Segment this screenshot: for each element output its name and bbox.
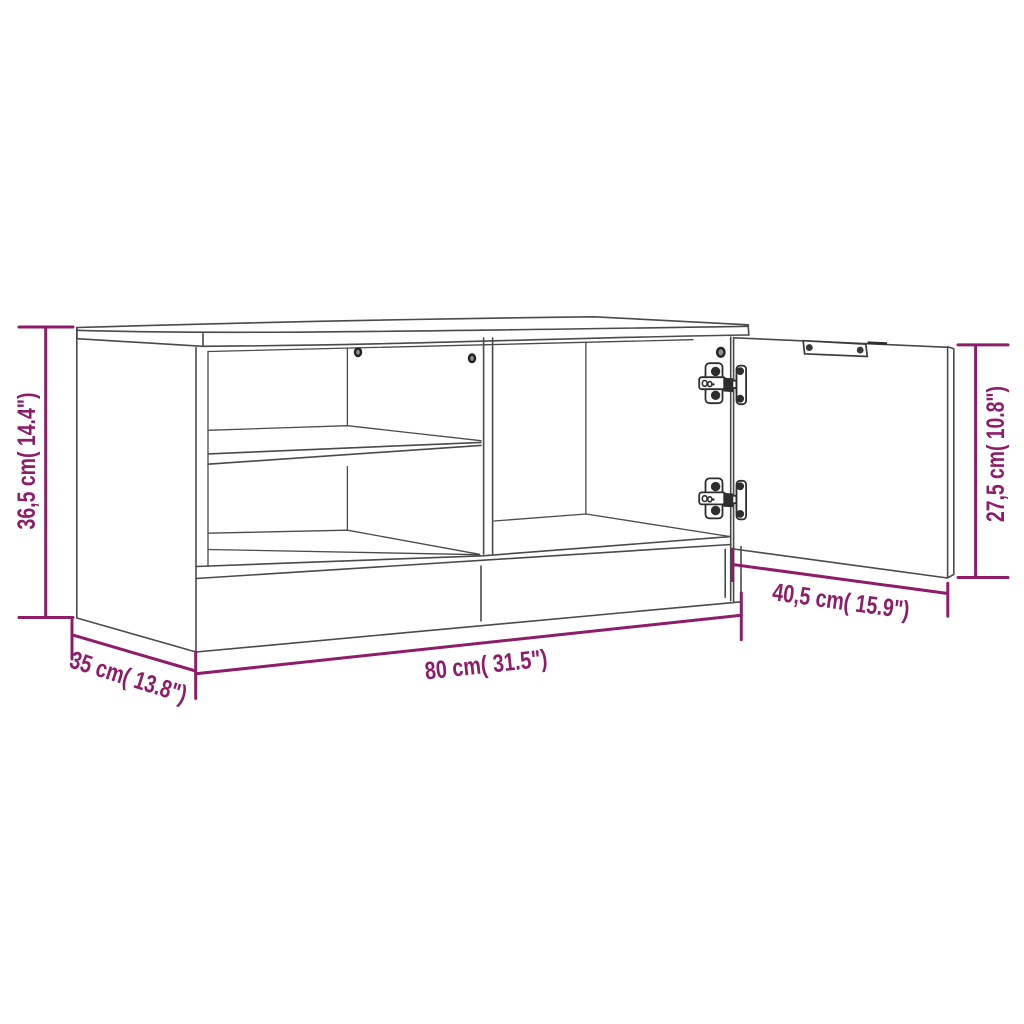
svg-text:27,5 cm( 10.8"): 27,5 cm( 10.8") [982,386,1010,522]
svg-text:35 cm( 13.8"): 35 cm( 13.8") [66,646,190,709]
svg-text:36,5 cm( 14.4"): 36,5 cm( 14.4") [13,393,41,530]
svg-text:80 cm( 31.5"): 80 cm( 31.5") [423,645,548,686]
